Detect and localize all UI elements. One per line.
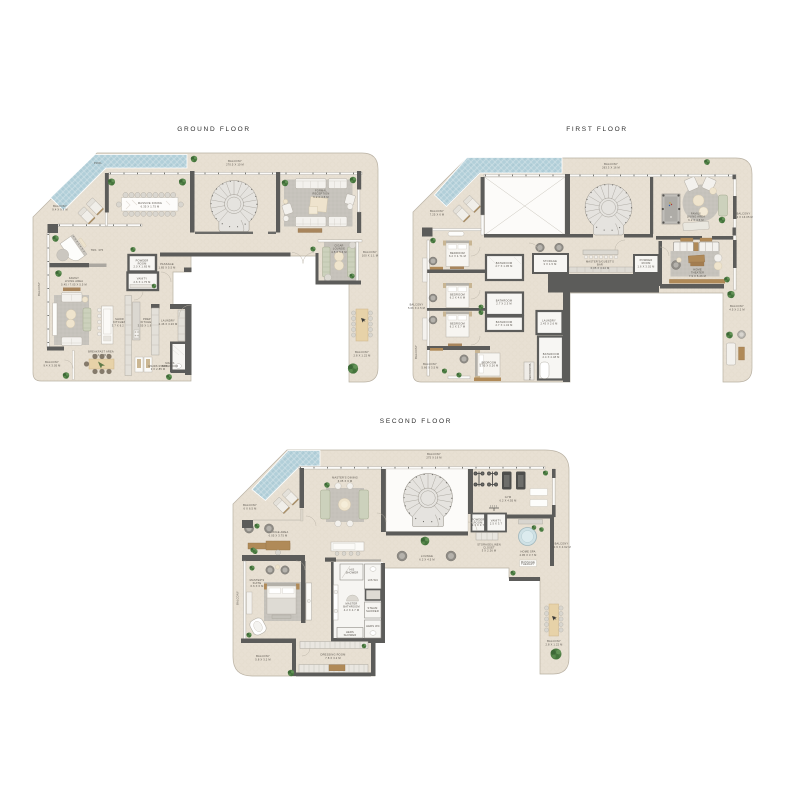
svg-text:5.66 X 3.5 M: 5.66 X 3.5 M [421, 366, 438, 370]
svg-text:BALCONY: BALCONY [737, 212, 751, 216]
svg-text:7.25 X 6 M: 7.25 X 6 M [430, 213, 445, 217]
svg-text:2.7 X 1.95 M: 2.7 X 1.95 M [495, 264, 512, 268]
svg-text:BALCONY: BALCONY [547, 639, 561, 643]
svg-text:BALCONY: BALCONY [555, 542, 569, 546]
svg-text:2.43 X 2.6 M: 2.43 X 2.6 M [540, 322, 557, 326]
svg-text:BALCONY: BALCONY [423, 362, 437, 366]
svg-text:1.4 X 3.7: 1.4 X 3.7 [472, 523, 485, 527]
svg-text:HIS WC: HIS WC [368, 578, 379, 582]
svg-text:TRK. 375: TRK. 375 [91, 248, 104, 252]
svg-text:5.66 X 2.5 M: 5.66 X 2.5 M [408, 306, 425, 310]
svg-text:5.95 X 5.26 M: 5.95 X 5.26 M [480, 364, 499, 368]
svg-text:HOME SPA: HOME SPA [520, 550, 535, 554]
svg-text:6.05 X 3.75 M: 6.05 X 3.75 M [269, 534, 288, 538]
svg-text:6.2 X 4.71 M: 6.2 X 4.71 M [449, 254, 466, 258]
svg-text:BALCONY: BALCONY [228, 159, 242, 163]
svg-text:100 X 1.1 M: 100 X 1.1 M [362, 254, 378, 258]
svg-text:7.9 X 5.26 M: 7.9 X 5.26 M [689, 274, 706, 278]
svg-text:2.7 X 2.3 M: 2.7 X 2.3 M [496, 302, 511, 306]
svg-text:1.85 X 5.5 M: 1.85 X 5.5 M [158, 266, 175, 270]
svg-text:BALCONY: BALCONY [430, 209, 444, 213]
svg-text:PASSAGE: PASSAGE [160, 262, 174, 266]
svg-text:3.4 X 16.05 M: 3.4 X 16.05 M [734, 215, 753, 219]
svg-text:2.5 X 3.7: 2.5 X 3.7 [490, 522, 503, 526]
svg-text:LOUNGE: LOUNGE [421, 554, 433, 558]
svg-text:2.6 X 1.75 M: 2.6 X 1.75 M [133, 280, 150, 284]
svg-text:BALCONY: BALCONY [414, 345, 418, 359]
svg-text:BALCONY: BALCONY [355, 350, 369, 354]
svg-text:6.2 X 4.6 M: 6.2 X 4.6 M [450, 296, 465, 300]
svg-text:MASTER'S DINING: MASTER'S DINING [332, 476, 358, 480]
svg-text:275 X 16 M: 275 X 16 M [426, 456, 441, 460]
svg-text:GROUND FLOOR: GROUND FLOOR [177, 126, 251, 133]
svg-text:MASSIVE DINING: MASSIVE DINING [138, 201, 162, 205]
svg-text:SECOND FLOOR: SECOND FLOOR [380, 418, 452, 425]
svg-text:WARDROBE: WARDROBE [528, 364, 532, 381]
svg-text:4.2 X 4.7 M: 4.2 X 4.7 M [344, 608, 359, 612]
svg-text:BALCONY: BALCONY [37, 282, 41, 296]
svg-text:5.45 / 7.05 X 5.5 M: 5.45 / 7.05 X 5.5 M [61, 282, 87, 286]
svg-text:1.6 X 3.02 M: 1.6 X 3.02 M [637, 264, 654, 268]
svg-text:6.6 X 6 M: 6.6 X 6 M [251, 584, 264, 588]
svg-text:3 X 1.5 M: 3 X 1.5 M [544, 262, 557, 266]
svg-text:2.4 X 4.48 M: 2.4 X 4.48 M [542, 355, 559, 359]
svg-text:6.05 X 3.02 M: 6.05 X 3.02 M [591, 266, 610, 270]
svg-text:4.95 X 3.7 M: 4.95 X 3.7 M [519, 553, 536, 557]
svg-text:9.4 X 3.05 M: 9.4 X 3.05 M [43, 364, 60, 368]
svg-text:BALCONY: BALCONY [604, 162, 618, 166]
svg-text:DRESSING ROOM: DRESSING ROOM [321, 653, 346, 657]
svg-text:BALCONY: BALCONY [256, 654, 270, 658]
svg-text:BALCONY: BALCONY [243, 503, 257, 507]
svg-text:5.8 X 3.2 M: 5.8 X 3.2 M [255, 658, 270, 662]
svg-text:SHOWER: SHOWER [366, 609, 379, 613]
svg-text:BALCONY: BALCONY [363, 250, 377, 254]
svg-text:6.35 X 1.75 M: 6.35 X 1.75 M [141, 205, 160, 209]
svg-text:POOL: POOL [94, 161, 102, 165]
svg-text:3 X 2.26 M: 3 X 2.26 M [482, 549, 497, 553]
svg-text:4.5 X 2.2 M: 4.5 X 2.2 M [729, 308, 744, 312]
svg-text:9.4 X 9.6 M: 9.4 X 9.6 M [52, 208, 67, 212]
svg-text:SHOWER: SHOWER [344, 633, 357, 637]
svg-text:6 X 6.5 M: 6 X 6.5 M [244, 507, 257, 511]
svg-text:BALCONY: BALCONY [730, 304, 744, 308]
svg-text:2.0 X 1.65 M: 2.0 X 1.65 M [133, 265, 150, 269]
svg-text:BALCONY: BALCONY [236, 591, 240, 605]
svg-text:BALCONY: BALCONY [53, 204, 67, 208]
svg-text:6.2 X 4.55 M: 6.2 X 4.55 M [499, 499, 516, 503]
svg-text:THERAPY: THERAPY [521, 562, 535, 566]
svg-text:BALCONY: BALCONY [410, 303, 424, 307]
svg-text:BALCONY: BALCONY [427, 452, 441, 456]
svg-text:SHOWER: SHOWER [346, 571, 359, 575]
svg-text:3 X 2.85 M: 3 X 2.85 M [151, 367, 166, 371]
svg-text:6.05 X 6 M: 6.05 X 6 M [338, 479, 353, 483]
svg-text:10.6 X 4.92 M: 10.6 X 4.92 M [552, 545, 571, 549]
svg-text:2.8 X 1.22 M: 2.8 X 1.22 M [545, 643, 562, 647]
svg-text:2.7 X 1.43 M: 2.7 X 1.43 M [495, 323, 512, 327]
svg-text:2.46 X 3.26 M: 2.46 X 3.26 M [159, 322, 178, 326]
svg-text:GYM: GYM [505, 495, 512, 499]
svg-text:FIRST FLOOR: FIRST FLOOR [566, 126, 628, 133]
svg-text:6.2 X 4.5 M: 6.2 X 4.5 M [688, 218, 703, 222]
svg-text:7.8 X 3.2 M: 7.8 X 3.2 M [325, 656, 340, 660]
svg-text:HERS WC: HERS WC [366, 624, 380, 628]
svg-text:2.8 X 1.22 M: 2.8 X 1.22 M [353, 354, 370, 358]
svg-text:270.5 X 10 M: 270.5 X 10 M [226, 163, 244, 167]
svg-text:6.2 X 4.5 M: 6.2 X 4.5 M [313, 195, 328, 199]
svg-text:BALCONY: BALCONY [45, 360, 59, 364]
svg-text:4.5 X 5.6 M: 4.5 X 5.6 M [331, 250, 346, 254]
svg-text:VANITY: VANITY [137, 277, 147, 281]
svg-text:6.2 X 3.7 M: 6.2 X 3.7 M [450, 325, 465, 329]
svg-text:263.3 X 16 M: 263.3 X 16 M [602, 166, 620, 170]
svg-text:6.2 X 4.5 M: 6.2 X 4.5 M [419, 558, 434, 562]
